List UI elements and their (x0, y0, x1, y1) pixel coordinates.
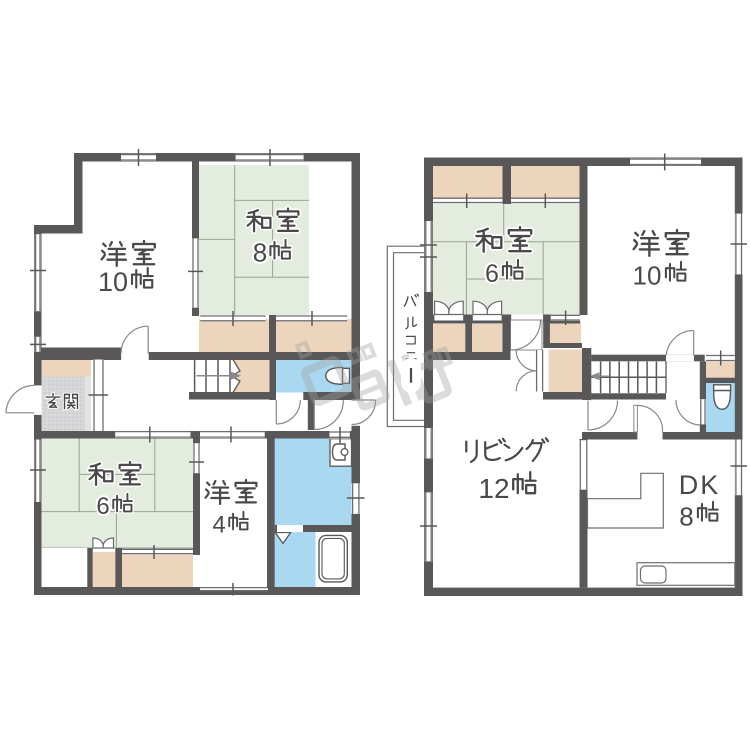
svg-text:10: 10 (633, 261, 662, 291)
svg-text:12: 12 (478, 473, 509, 504)
svg-text:DK: DK (679, 470, 721, 500)
svg-text:8: 8 (253, 238, 267, 268)
svg-text:4: 4 (212, 512, 225, 539)
svg-text:6: 6 (96, 493, 109, 520)
svg-text:8: 8 (679, 502, 693, 532)
svg-text:10: 10 (98, 267, 128, 297)
svg-text:6: 6 (485, 260, 499, 288)
